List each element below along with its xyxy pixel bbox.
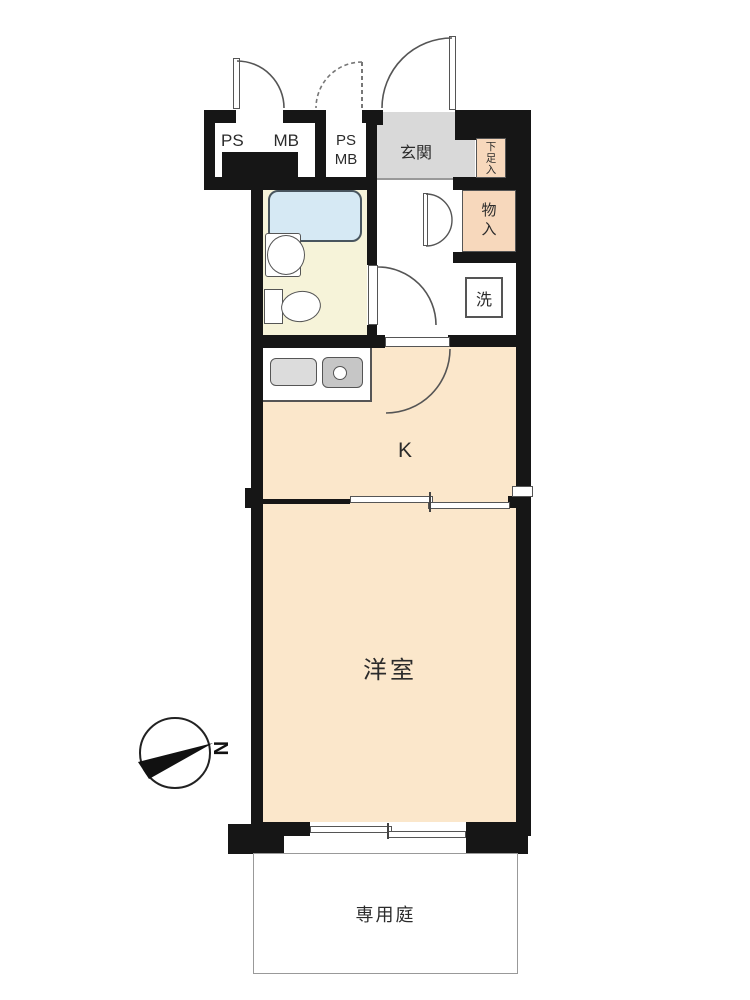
psbox1-door-arc [237,61,284,108]
wall-divider-thin [263,499,350,504]
private-garden: 専用庭 [253,853,518,974]
window-panel-1 [310,826,392,833]
kitchen-burner [270,358,317,386]
bathroom-door-leaf [368,265,378,325]
right-wall-window [512,486,533,497]
psbox1-notch [222,152,298,177]
psbox1-labels: PS MB [215,130,305,152]
mb-label: MB [274,131,300,151]
floor-plan: 専用庭 PS MB PS MB 玄関 下足入 物入 洗 K 洋室 N [0,0,750,1000]
kitchen-label: K [385,439,425,463]
wall-band-under-boxes [204,177,377,190]
wall-bathroom-right-upper [367,190,377,265]
sliding-door-tick [429,492,431,512]
compass-north-label: N [209,741,231,755]
mb2-label: MB [335,150,358,170]
ps2-label: PS [336,131,356,151]
pillar-left [228,824,284,854]
window-panel-2 [388,831,466,838]
psbox1-door-leaf [233,58,240,109]
kitchen-and-room-floor [263,347,516,822]
wall-divider-right-stub [508,496,531,508]
wall-right-main [516,110,531,836]
wall-closet-bottom [453,252,531,263]
shoe-cabinet-label: 下足入 [476,140,506,177]
sliding-door-panel-2 [428,502,510,509]
private-garden-label: 専用庭 [356,901,416,927]
entrance-door-arc [382,38,452,108]
entrance-label: 玄関 [386,141,446,161]
closet-door-leaves [423,193,428,246]
pillar-right [466,824,528,854]
compass-circle [140,718,210,788]
western-room-label: 洋室 [340,652,440,682]
entrance-door-leaf [449,36,456,110]
window-tick [387,823,389,839]
ps-label: PS [221,131,244,151]
wall-washroom-bottom-right [448,335,531,347]
sliding-door-panel-1 [350,496,433,503]
kitchen-door-leaf [385,337,450,347]
dashed-door-arc [316,62,362,108]
laundry-label: 洗 [465,277,503,318]
closet-label-text: 物入 [481,202,498,240]
wash-basin [267,235,305,275]
closet-label: 物入 [462,190,516,252]
wall-divider-left-stub [245,488,263,508]
compass-icon: N [138,718,231,788]
wall-bathroom-bottom [251,335,385,348]
psbox2-labels: PS MB [326,124,366,176]
kitchen-sink-drain [333,366,347,380]
compass-needle [138,743,213,779]
